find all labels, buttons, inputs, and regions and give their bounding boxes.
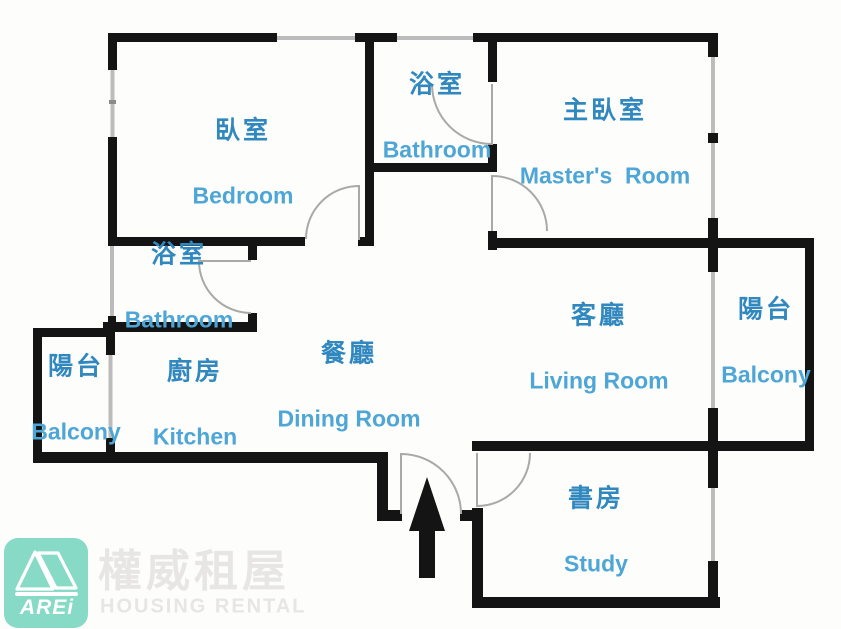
room-label-balcony-right: 陽台 Balcony: [721, 260, 810, 425]
logo-brand-text: AREi: [20, 596, 74, 620]
room-name-zh: 廚房: [153, 358, 237, 387]
room-name-zh: 書房: [564, 485, 628, 514]
room-name-en: Living Room: [529, 367, 668, 395]
watermark-agency-tagline: HOUSING RENTAL: [100, 596, 307, 619]
room-name-en: Bathroom: [383, 136, 492, 164]
room-name-zh: 陽台: [721, 296, 810, 325]
room-name-zh: 主臥室: [520, 97, 690, 126]
room-name-zh: 浴室: [125, 241, 234, 270]
floorplan: 臥室 Bedroom 浴室 Bathroom 主臥室 Master's Room…: [0, 0, 841, 629]
room-label-balcony-left: 陽台 Balcony: [31, 317, 120, 482]
room-name-en: Study: [564, 550, 628, 578]
room-name-zh: 客廳: [529, 302, 668, 331]
watermark-agency-name: 權威租屋: [98, 535, 290, 599]
room-label-study: 書房 Study: [564, 449, 628, 614]
room-name-en: Balcony: [721, 361, 810, 389]
room-name-en: Kitchen: [153, 423, 237, 451]
room-label-master-room: 主臥室 Master's Room: [520, 61, 690, 226]
room-name-en: Balcony: [31, 418, 120, 446]
room-name-zh: 臥室: [193, 117, 294, 146]
room-name-zh: 浴室: [383, 71, 492, 100]
room-name-zh: 陽台: [31, 353, 120, 382]
room-label-kitchen: 廚房 Kitchen: [153, 322, 237, 487]
room-label-dining-room: 餐廳 Dining Room: [277, 304, 420, 469]
room-label-living-room: 客廳 Living Room: [529, 266, 668, 431]
room-label-bathroom-top: 浴室 Bathroom: [383, 35, 492, 200]
room-name-en: Master's Room: [520, 162, 690, 190]
room-name-zh: 餐廳: [277, 340, 420, 369]
entrance-arrow-icon: [409, 477, 445, 578]
room-name-en: Dining Room: [277, 405, 420, 433]
